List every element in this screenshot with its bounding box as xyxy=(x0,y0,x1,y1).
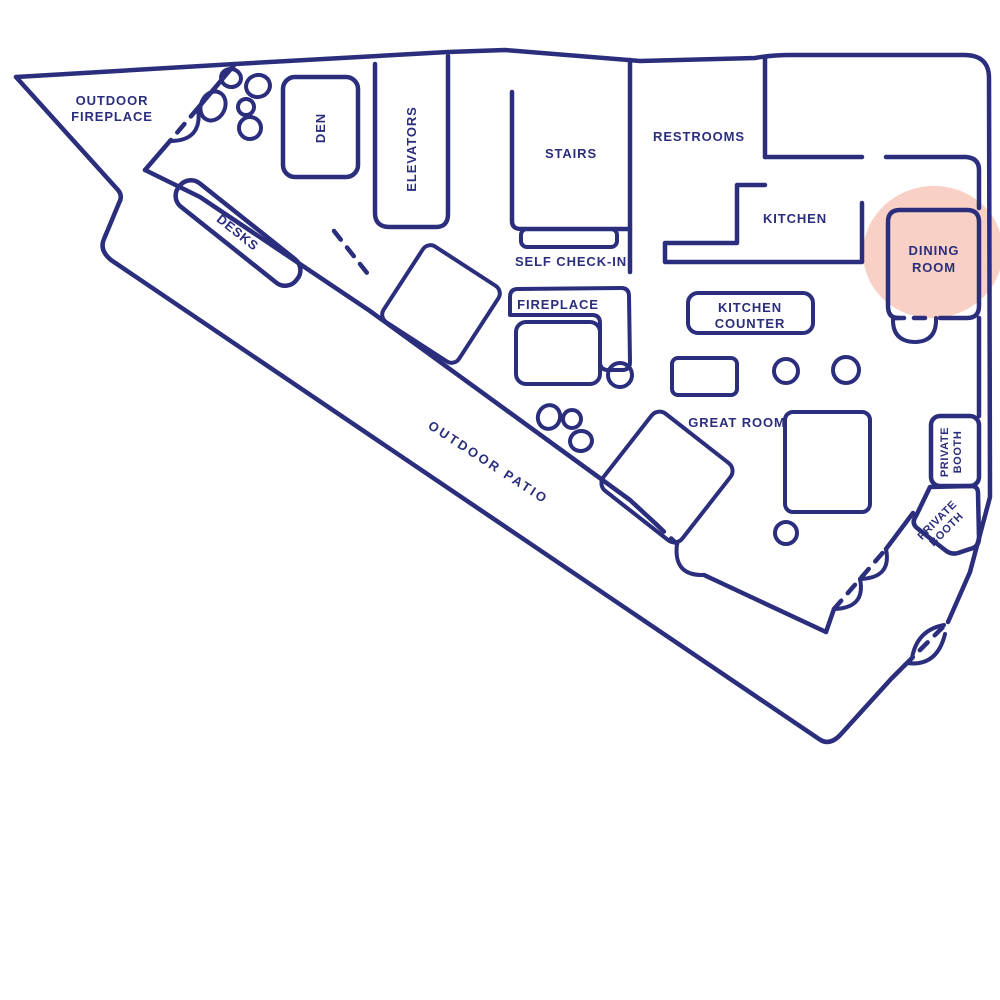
svg-text:PRIVATE: PRIVATE xyxy=(939,427,951,477)
nw-door-opening xyxy=(170,108,198,141)
se-inner-wall-low xyxy=(826,609,834,632)
great-room-table-large xyxy=(785,412,870,512)
fireplace-stool xyxy=(608,363,632,387)
se-inner-wall-high xyxy=(886,513,913,549)
label-den: DEN xyxy=(313,113,328,143)
label-dining-room-line2: ROOM xyxy=(912,260,956,275)
nw-wall-lower xyxy=(145,141,170,170)
label-outdoor-fireplace-line2: FIREPLACE xyxy=(71,109,153,124)
entry-pebbles xyxy=(196,67,273,139)
label-restrooms: RESTROOMS xyxy=(653,129,745,144)
label-outdoor-fireplace-line1: OUTDOOR xyxy=(76,93,149,108)
label-stairs: STAIRS xyxy=(545,146,597,161)
label-kitchen: KITCHEN xyxy=(763,211,827,226)
great-room-table-small xyxy=(672,358,737,395)
floor-plan-canvas: OUTDOOR FIREPLACE DEN ELEVATORS STAIRS S… xyxy=(0,0,1000,1000)
great-room-stool-1 xyxy=(774,359,798,383)
label-private-booth-lower: PRIVATE BOOTH xyxy=(915,498,968,551)
dining-door-arc-left xyxy=(893,318,914,342)
building-outline-lower xyxy=(16,77,905,742)
label-elevators: ELEVATORS xyxy=(404,106,419,191)
building-outline xyxy=(16,50,990,622)
check-in-desk xyxy=(521,229,617,247)
meeting-table xyxy=(379,242,503,366)
great-room-stool-2 xyxy=(833,357,859,383)
label-great-room: GREAT ROOM xyxy=(688,415,786,430)
fireplace-rug xyxy=(516,322,600,384)
label-self-check-in: SELF CHECK-IN xyxy=(515,254,627,269)
label-dining-room-line1: DINING xyxy=(909,243,960,258)
svg-text:BOOTH: BOOTH xyxy=(952,431,964,474)
label-fireplace: FIREPLACE xyxy=(517,297,599,312)
sw-wall-end xyxy=(704,575,826,632)
den-opening xyxy=(334,231,371,278)
patio-door-arc xyxy=(677,544,704,575)
label-kitchen-counter-line1: KITCHEN xyxy=(718,300,782,315)
dining-door-arc-right xyxy=(916,318,936,342)
label-private-booth-upper: PRIVATE BOOTH xyxy=(939,427,964,477)
label-kitchen-counter-line2: COUNTER xyxy=(715,316,786,331)
great-room-stool-3 xyxy=(775,522,797,544)
mid-pebbles xyxy=(535,402,594,453)
floor-plan: OUTDOOR FIREPLACE DEN ELEVATORS STAIRS S… xyxy=(0,0,1000,1000)
